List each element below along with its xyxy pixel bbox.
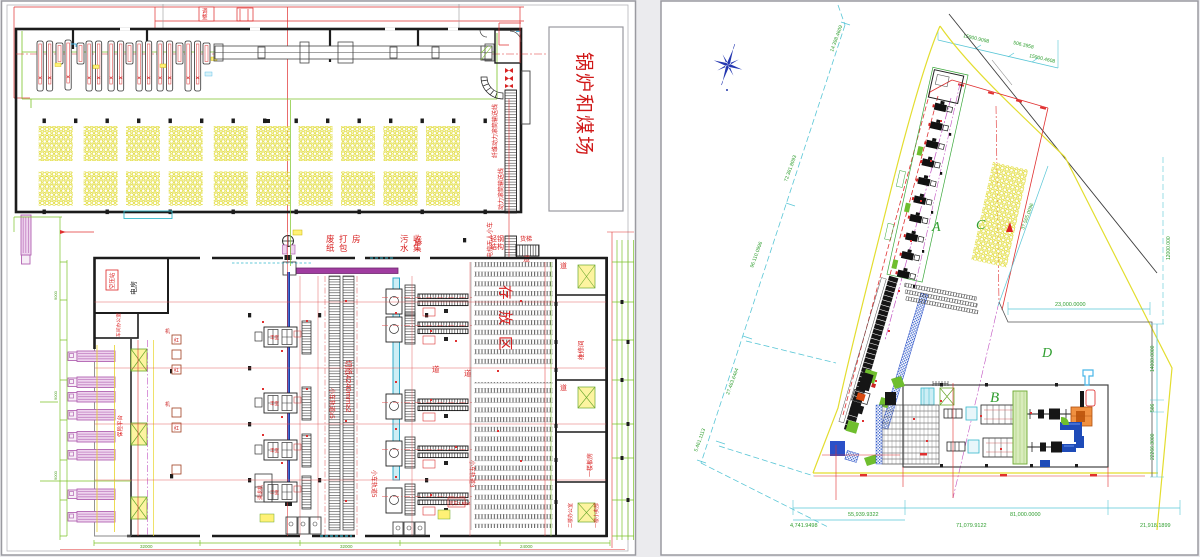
svg-text:机: 机	[165, 328, 170, 335]
svg-text:水: 水	[400, 243, 409, 253]
svg-text:道: 道	[432, 364, 440, 374]
svg-text:23,000.0000: 23,000.0000	[1055, 302, 1086, 308]
svg-text:轻钢: 轻钢	[490, 234, 504, 243]
svg-text:动力滚筒输送线: 动力滚筒输送线	[497, 168, 505, 210]
svg-text:21,918.1899: 21,918.1899	[1140, 523, 1171, 529]
svg-text:B: B	[990, 390, 999, 406]
svg-text:机: 机	[165, 401, 170, 408]
svg-text:小车轨道5: 小车轨道5	[370, 470, 378, 498]
svg-text:存放区: 存放区	[496, 285, 513, 362]
svg-text:道: 道	[560, 261, 567, 270]
svg-text:D: D	[1041, 346, 1052, 361]
svg-text:14000.0000: 14000.0000	[1150, 345, 1156, 372]
svg-text:纸: 纸	[326, 243, 335, 253]
svg-text:货梯: 货梯	[520, 235, 532, 243]
svg-text:55,939.9322: 55,939.9322	[848, 512, 879, 518]
svg-text:红: 红	[174, 425, 179, 432]
svg-text:一楼小卖部: 一楼小卖部	[593, 503, 600, 528]
svg-text:包: 包	[339, 243, 348, 253]
svg-text:24000: 24000	[520, 544, 533, 549]
svg-text:4,741.9498: 4,741.9498	[790, 523, 818, 529]
svg-text:A: A	[931, 220, 941, 235]
svg-text:维修间: 维修间	[576, 341, 585, 361]
svg-text:二楼办公室: 二楼办公室	[567, 503, 574, 528]
svg-text:C: C	[976, 218, 986, 233]
svg-text:9000: 9000	[53, 390, 58, 400]
svg-text:道: 道	[560, 383, 567, 392]
svg-text:调: 调	[202, 7, 208, 15]
svg-text:71,079.9122: 71,079.9122	[956, 523, 987, 529]
svg-text:22266.3000: 22266.3000	[1150, 433, 1156, 460]
svg-text:电房: 电房	[129, 281, 138, 295]
svg-text:红: 红	[174, 337, 179, 344]
svg-text:整: 整	[202, 13, 208, 21]
svg-text:车间办公室: 车间办公室	[115, 313, 122, 337]
svg-text:506: 506	[1150, 403, 1156, 412]
svg-text:清退机: 清退机	[257, 485, 264, 500]
svg-text:9000: 9000	[53, 470, 58, 480]
svg-text:空压站: 空压站	[108, 272, 116, 289]
svg-text:小车轨道≥5: 小车轨道≥5	[328, 388, 336, 419]
svg-text:房: 房	[352, 234, 361, 244]
svg-text:纤维动力滚筒输送线: 纤维动力滚筒输送线	[491, 104, 499, 158]
svg-text:道: 道	[414, 238, 423, 245]
svg-text:叉车1.5t≥4: 叉车1.5t≥4	[449, 500, 471, 507]
svg-text:保险平台: 保险平台	[116, 414, 124, 437]
svg-text:32000: 32000	[340, 544, 353, 549]
svg-text:9000: 9000	[53, 290, 58, 300]
svg-text:锅炉和煤场: 锅炉和煤场	[573, 52, 595, 157]
svg-text:32000: 32000	[140, 544, 153, 549]
svg-text:12000.000: 12000.000	[1166, 236, 1172, 260]
svg-text:结构: 结构	[490, 242, 504, 251]
svg-text:81,000.0000: 81,000.0000	[1010, 512, 1041, 518]
svg-text:一楼板房: 一楼板房	[586, 453, 594, 477]
